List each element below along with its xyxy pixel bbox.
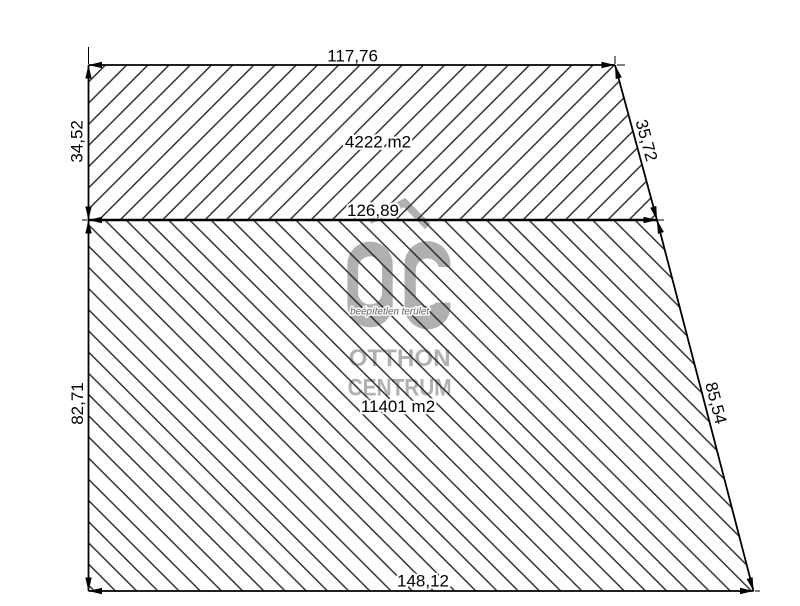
svg-text:beépítetlen terület: beépítetlen terület: [350, 306, 430, 318]
svg-text:11401 m2: 11401 m2: [361, 397, 435, 416]
svg-text:82,71: 82,71: [68, 382, 87, 425]
svg-text:4222 m2: 4222 m2: [345, 133, 411, 152]
svg-text:34,52: 34,52: [67, 120, 86, 163]
svg-text:148,12: 148,12: [397, 571, 449, 590]
svg-text:117,76: 117,76: [327, 47, 378, 66]
svg-text:126,89: 126,89: [347, 201, 399, 220]
